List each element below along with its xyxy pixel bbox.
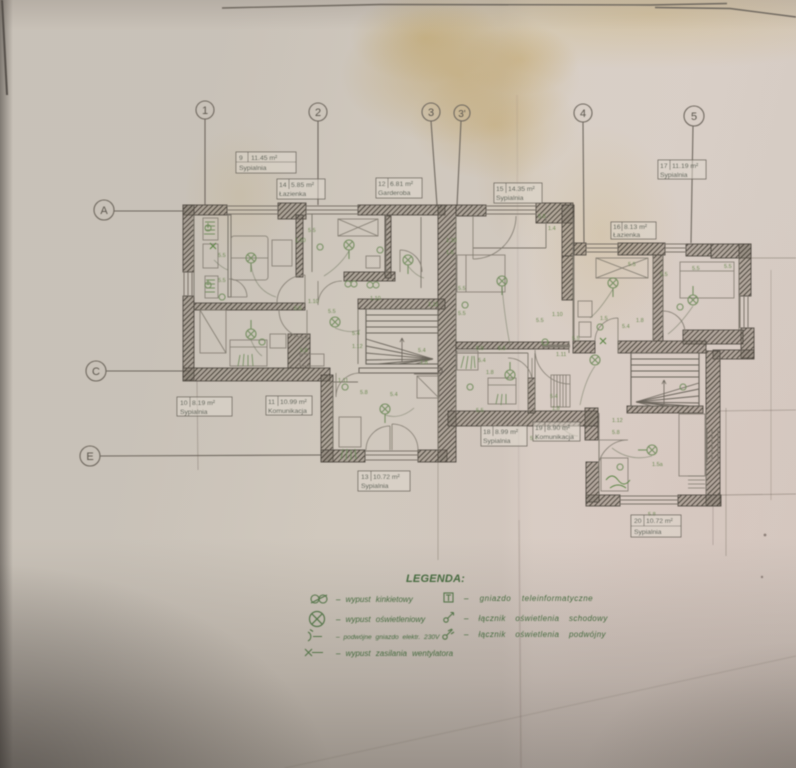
svg-text:1.8: 1.8	[420, 360, 428, 366]
svg-text:– łącznik oświetlenia schod: – łącznik oświetlenia schodowy	[463, 614, 608, 623]
svg-text:1.8: 1.8	[552, 406, 560, 412]
svg-text:10.72 m²: 10.72 m²	[373, 474, 401, 481]
svg-text:5.4: 5.4	[418, 348, 426, 354]
svg-text:1.5: 1.5	[600, 316, 608, 322]
svg-text:5.5: 5.5	[476, 408, 484, 414]
svg-text:1: 1	[202, 105, 208, 117]
svg-text:Sypialnia: Sypialnia	[361, 483, 389, 490]
svg-text:1.8: 1.8	[636, 318, 644, 324]
svg-text:14: 14	[279, 182, 287, 189]
svg-text:1.12: 1.12	[352, 344, 363, 350]
svg-text:5.5: 5.5	[538, 214, 546, 220]
svg-text:1.6: 1.6	[446, 250, 454, 256]
svg-text:12: 12	[378, 181, 386, 188]
svg-text:Łazienka: Łazienka	[279, 191, 306, 198]
svg-text:5.5: 5.5	[458, 286, 466, 292]
svg-text:5.5: 5.5	[536, 318, 544, 324]
svg-text:E: E	[86, 451, 93, 463]
svg-text:Sypialnia: Sypialnia	[483, 438, 511, 445]
svg-text:2: 2	[315, 107, 321, 119]
svg-text:5.5: 5.5	[458, 311, 466, 317]
svg-text:17: 17	[660, 163, 668, 170]
svg-text:5.5: 5.5	[660, 272, 668, 278]
svg-text:1.5a: 1.5a	[652, 462, 664, 468]
svg-text:1.10: 1.10	[552, 312, 563, 318]
svg-text:9: 9	[239, 155, 243, 162]
svg-text:C: C	[92, 366, 100, 378]
svg-text:1.10: 1.10	[308, 299, 319, 305]
svg-text:18: 18	[483, 429, 491, 436]
svg-text:1.10: 1.10	[370, 296, 381, 302]
svg-text:– gniazdo teleinformatyczne: – gniazdo teleinformatyczne	[463, 594, 593, 603]
svg-text:5.4: 5.4	[390, 392, 398, 398]
svg-text:Komunikacja: Komunikacja	[268, 408, 307, 415]
svg-text:5.5: 5.5	[572, 336, 580, 342]
svg-text:11.19 m²: 11.19 m²	[672, 163, 699, 170]
svg-text:Sypialnia: Sypialnia	[496, 195, 524, 202]
svg-text:5.4: 5.4	[622, 324, 630, 330]
svg-text:4: 4	[580, 108, 586, 120]
svg-text:Sypialnia: Sypialnia	[660, 172, 688, 179]
svg-text:1.10: 1.10	[295, 238, 306, 244]
svg-text:5.5: 5.5	[724, 264, 732, 270]
svg-text:5: 5	[691, 111, 697, 123]
svg-text:8.90 m²: 8.90 m²	[547, 425, 571, 432]
svg-text:1.8: 1.8	[486, 370, 494, 376]
svg-text:5.5: 5.5	[476, 346, 484, 352]
svg-text:– wypust kinkietowy: – wypust kinkietowy	[335, 595, 414, 604]
svg-text:Komunikacja: Komunikacja	[535, 434, 574, 441]
svg-text:– łącznik oświetlenia podwó: – łącznik oświetlenia podwójny	[463, 630, 607, 639]
svg-text:15: 15	[496, 186, 504, 193]
svg-text:16: 16	[613, 224, 621, 231]
svg-text:5.5: 5.5	[328, 309, 336, 315]
svg-text:8.99 m²: 8.99 m²	[495, 429, 519, 436]
svg-text:Łazienka: Łazienka	[613, 232, 640, 239]
svg-text:1.11: 1.11	[428, 302, 438, 308]
svg-text:10.99 m²: 10.99 m²	[280, 399, 308, 406]
svg-text:19: 19	[535, 425, 543, 432]
svg-text:Sypialnia: Sypialnia	[634, 529, 662, 536]
svg-text:5.4: 5.4	[550, 394, 558, 400]
svg-text:1.11: 1.11	[338, 378, 348, 384]
svg-text:13: 13	[361, 474, 369, 481]
svg-text:5.5: 5.5	[294, 306, 302, 312]
svg-text:5.8: 5.8	[360, 390, 368, 396]
svg-text:3': 3'	[458, 109, 466, 120]
svg-text:10.72 m²: 10.72 m²	[646, 518, 674, 525]
svg-text:5.85 m²: 5.85 m²	[291, 182, 315, 189]
svg-text:– wypust oświetleniowy: – wypust oświetleniowy	[335, 615, 426, 624]
svg-text:5.5: 5.5	[308, 228, 316, 234]
svg-text:5.5: 5.5	[218, 278, 226, 284]
svg-text:20: 20	[634, 518, 642, 525]
svg-text:1.4: 1.4	[548, 226, 556, 232]
svg-text:14.35 m²: 14.35 m²	[508, 186, 536, 193]
svg-text:Sypialnia: Sypialnia	[180, 409, 208, 416]
svg-text:5.4: 5.4	[478, 358, 486, 364]
svg-text:5.5: 5.5	[628, 262, 636, 268]
svg-text:1.11: 1.11	[556, 352, 566, 358]
svg-text:10: 10	[180, 400, 188, 407]
svg-text:5.8: 5.8	[300, 348, 308, 354]
svg-text:11: 11	[268, 399, 275, 406]
svg-text:1.10: 1.10	[446, 238, 457, 244]
svg-text:– wypust zasilania wentylat: – wypust zasilania wentylatora	[335, 649, 454, 658]
svg-text:3: 3	[428, 107, 434, 119]
svg-text:– podwójne gniazdo elektr.: – podwójne gniazdo elektr. 230V	[335, 634, 440, 641]
svg-text:6.81 m²: 6.81 m²	[390, 181, 414, 188]
svg-text:5.5: 5.5	[218, 253, 226, 259]
svg-text:1.12: 1.12	[612, 418, 623, 424]
svg-text:LEGENDA:: LEGENDA:	[406, 573, 465, 585]
svg-text:8.19 m²: 8.19 m²	[192, 400, 216, 407]
svg-text:5.5: 5.5	[498, 346, 506, 352]
svg-text:A: A	[100, 205, 108, 217]
svg-text:11.45 m²: 11.45 m²	[251, 155, 278, 162]
svg-text:Garderoba: Garderoba	[378, 190, 411, 197]
svg-text:5.5: 5.5	[692, 266, 700, 272]
svg-text:Sypialnia: Sypialnia	[239, 165, 267, 172]
svg-text:8.13 m²: 8.13 m²	[624, 224, 648, 231]
svg-text:5.8: 5.8	[612, 430, 620, 436]
